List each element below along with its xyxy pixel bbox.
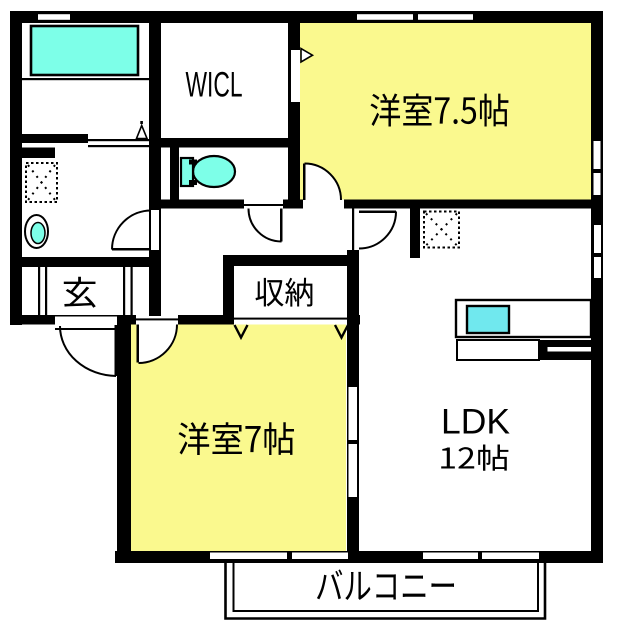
svg-text:LDK: LDK <box>441 403 510 442</box>
svg-text:WICL: WICL <box>186 66 243 105</box>
